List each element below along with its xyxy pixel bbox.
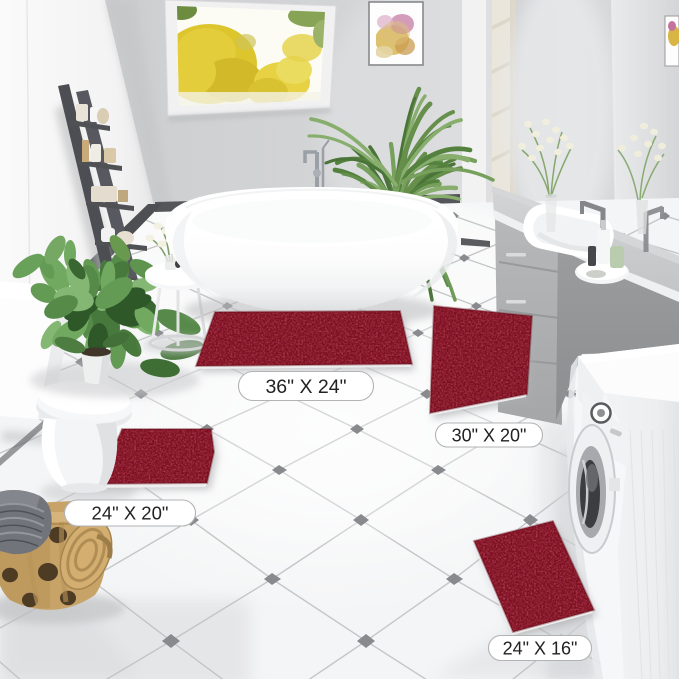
svg-text:36" X 24": 36" X 24" <box>265 376 346 398</box>
svg-text:30" X 20": 30" X 20" <box>452 425 527 445</box>
svg-text:24" X 16": 24" X 16" <box>503 638 578 658</box>
svg-text:24" X 20": 24" X 20" <box>92 503 169 524</box>
